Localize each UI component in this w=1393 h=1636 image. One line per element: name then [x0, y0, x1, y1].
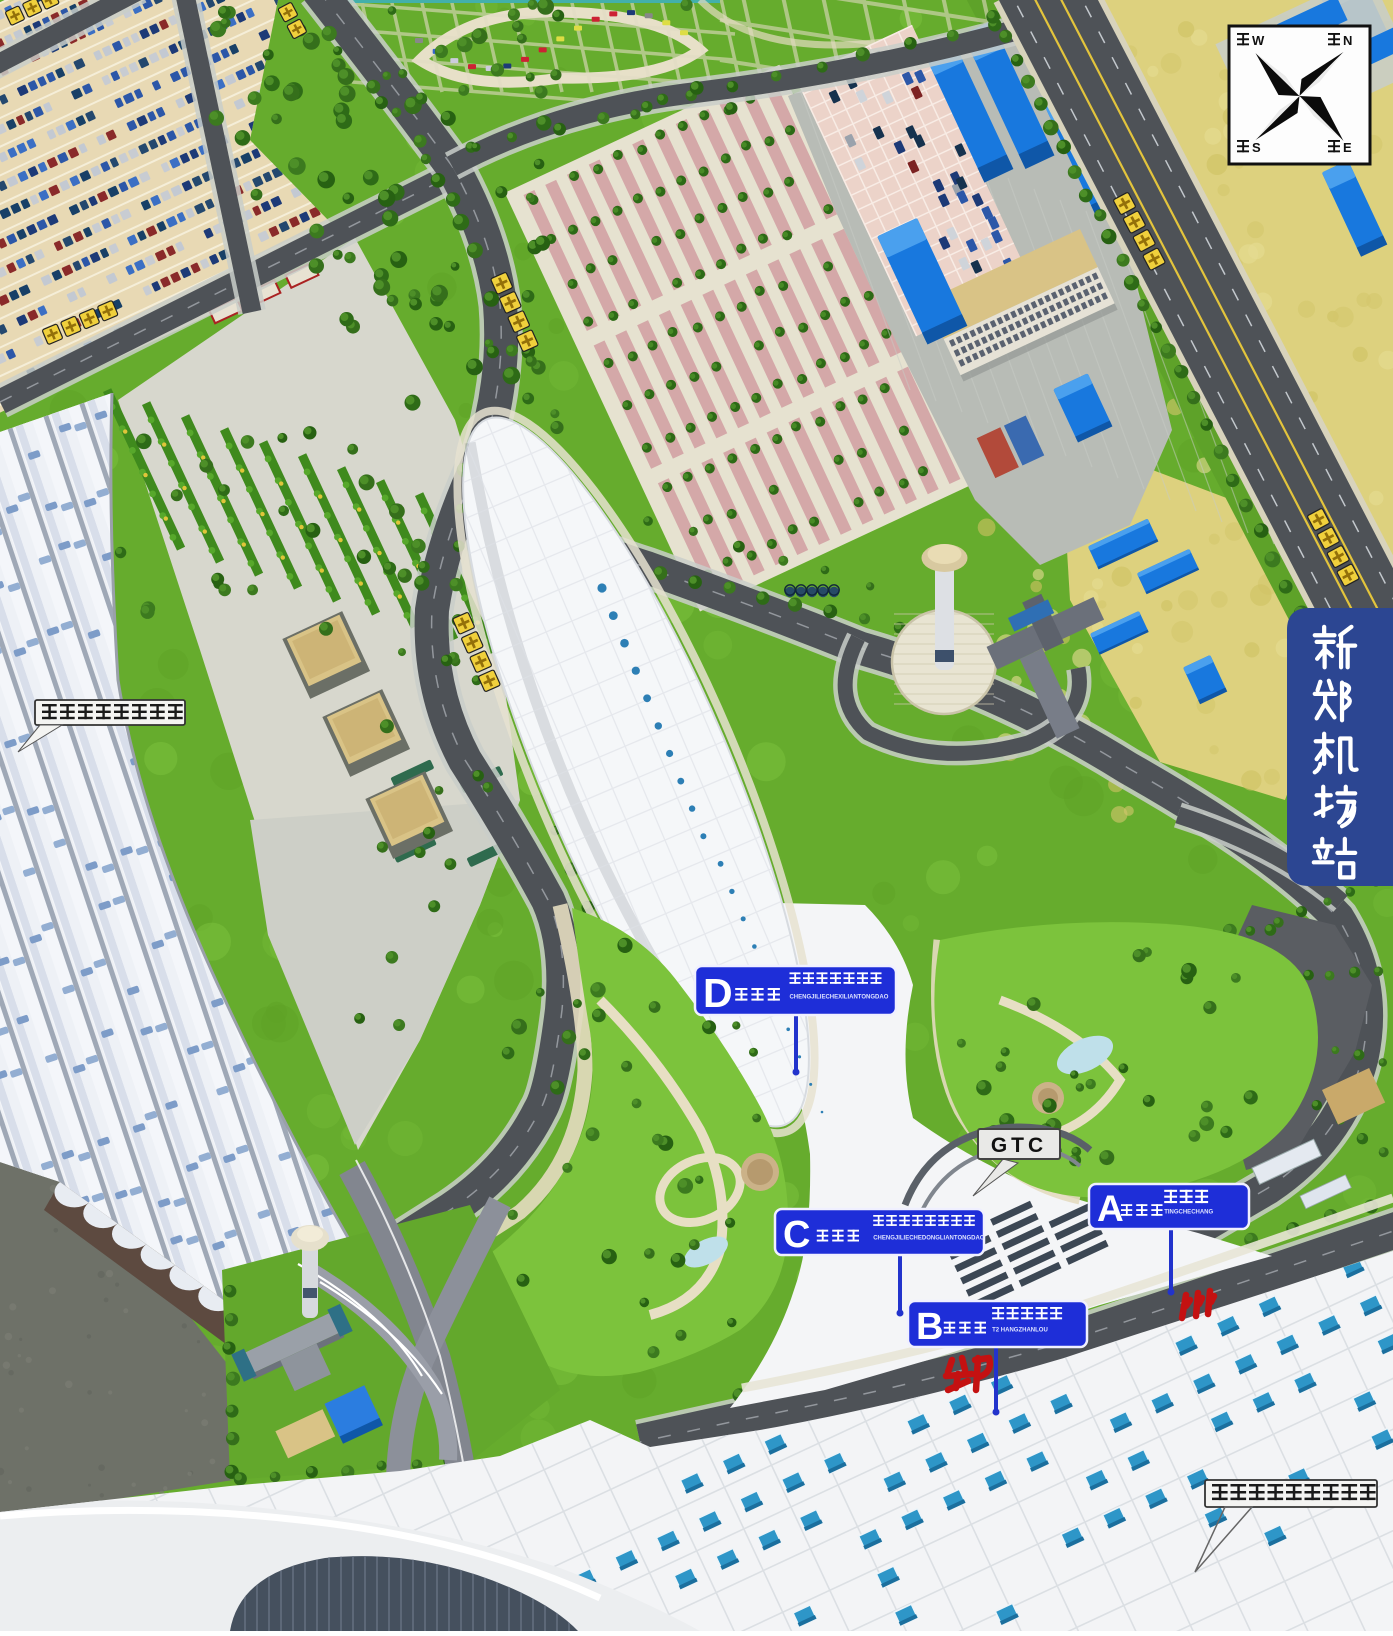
svg-text:CHENGJILIECHEDONGLIANTONGDAO: CHENGJILIECHEDONGLIANTONGDAO [873, 1235, 985, 1241]
svg-text:N: N [1343, 33, 1352, 48]
svg-text:T2 HANGZHANLOU: T2 HANGZHANLOU [992, 1327, 1048, 1333]
svg-text:TINGCHECHANG: TINGCHECHANG [1164, 1210, 1213, 1216]
svg-text:D: D [703, 970, 733, 1016]
svg-text:W: W [1252, 33, 1265, 48]
svg-text:A: A [1097, 1188, 1124, 1229]
svg-text:B: B [916, 1306, 943, 1348]
svg-text:S: S [1252, 140, 1261, 155]
svg-text:C: C [783, 1214, 810, 1256]
svg-text:E: E [1343, 140, 1352, 155]
svg-text:GTC: GTC [991, 1134, 1047, 1157]
svg-text:CHENGJILIECHEXILIANTONGDAO: CHENGJILIECHEXILIANTONGDAO [789, 994, 888, 1000]
